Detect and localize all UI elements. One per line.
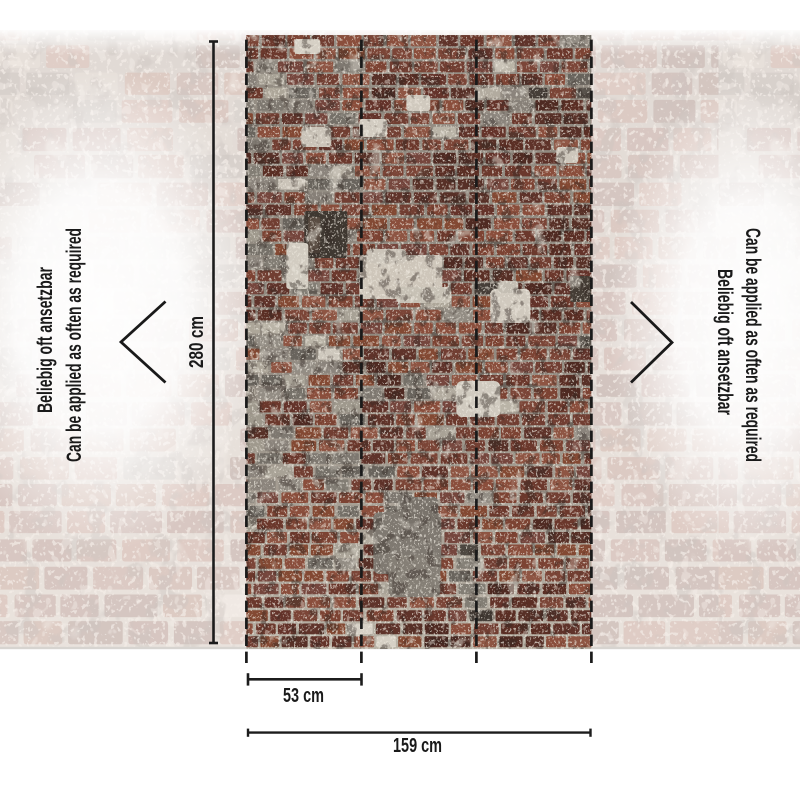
svg-text:53 cm: 53 cm	[283, 685, 324, 707]
svg-text:Beliebig oft ansetzbar: Beliebig oft ansetzbar	[713, 269, 737, 415]
svg-text:280 cm: 280 cm	[186, 316, 208, 368]
svg-text:Can be applied as often as req: Can be applied as often as required	[62, 228, 86, 462]
svg-text:159 cm: 159 cm	[393, 735, 442, 757]
svg-text:Beliebig oft ansetzbar: Beliebig oft ansetzbar	[33, 267, 57, 413]
svg-text:Can be applied as often as req: Can be applied as often as required	[741, 228, 765, 462]
